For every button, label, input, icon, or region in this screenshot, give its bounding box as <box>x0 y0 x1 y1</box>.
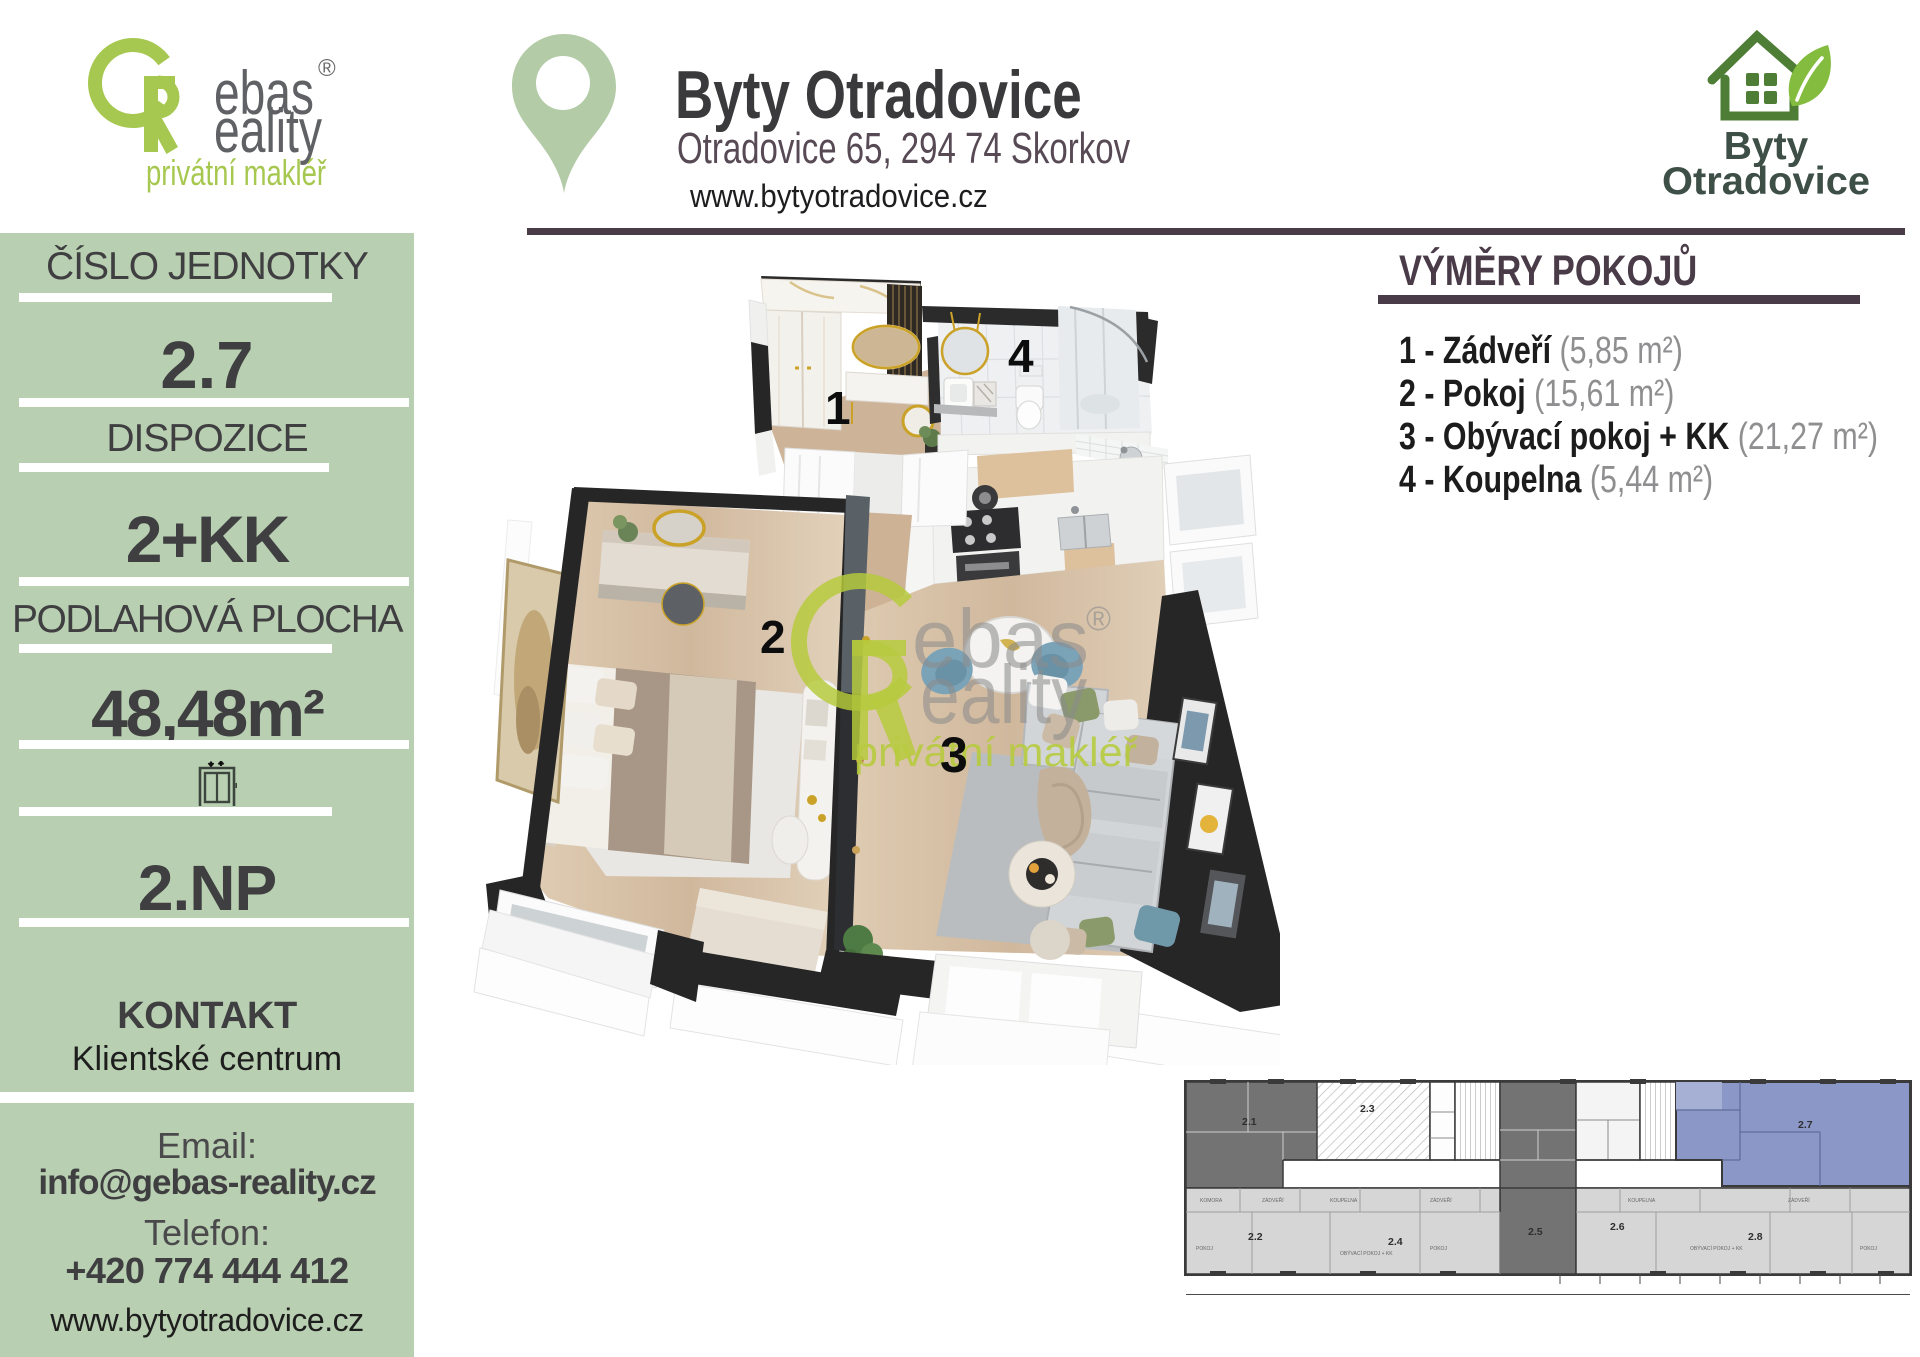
svg-text:ZÁDVEŘÍ: ZÁDVEŘÍ <box>1262 1196 1284 1204</box>
svg-text:1: 1 <box>825 382 851 434</box>
svg-text:POKOJ: POKOJ <box>1430 1246 1447 1252</box>
svg-text:privátní makléř: privátní makléř <box>854 729 1138 775</box>
svg-text:2.1: 2.1 <box>1242 1116 1257 1128</box>
svg-text:2.5: 2.5 <box>1528 1226 1543 1238</box>
svg-text:2.2: 2.2 <box>1248 1231 1263 1243</box>
svg-text:KOUPELNA: KOUPELNA <box>1330 1198 1358 1204</box>
svg-text:2.8: 2.8 <box>1748 1231 1763 1243</box>
svg-text:OBÝVACÍ POKOJ + KK: OBÝVACÍ POKOJ + KK <box>1340 1250 1393 1257</box>
svg-text:2.3: 2.3 <box>1360 1103 1375 1115</box>
svg-text:privátní makléř: privátní makléř <box>146 152 327 193</box>
svg-text:4: 4 <box>1008 330 1034 382</box>
svg-text:KOUPELNA: KOUPELNA <box>1628 1198 1656 1204</box>
svg-text:OBÝVACÍ POKOJ + KK: OBÝVACÍ POKOJ + KK <box>1690 1245 1743 1252</box>
svg-text:®: ® <box>1086 600 1111 638</box>
svg-text:2.4: 2.4 <box>1388 1236 1403 1248</box>
svg-text:ZÁDVEŘÍ: ZÁDVEŘÍ <box>1430 1196 1452 1204</box>
svg-text:POKOJ: POKOJ <box>1196 1246 1213 1252</box>
svg-text:ZÁDVEŘÍ: ZÁDVEŘÍ <box>1788 1196 1810 1204</box>
svg-text:2.7: 2.7 <box>1798 1119 1813 1131</box>
svg-text:Otradovice: Otradovice <box>1662 160 1870 199</box>
svg-text:®: ® <box>318 55 336 82</box>
svg-text:POKOJ: POKOJ <box>1860 1246 1877 1252</box>
svg-text:KOMORA: KOMORA <box>1200 1198 1223 1204</box>
svg-text:3: 3 <box>940 727 968 783</box>
svg-text:2: 2 <box>760 611 786 663</box>
svg-text:2.6: 2.6 <box>1610 1221 1625 1233</box>
